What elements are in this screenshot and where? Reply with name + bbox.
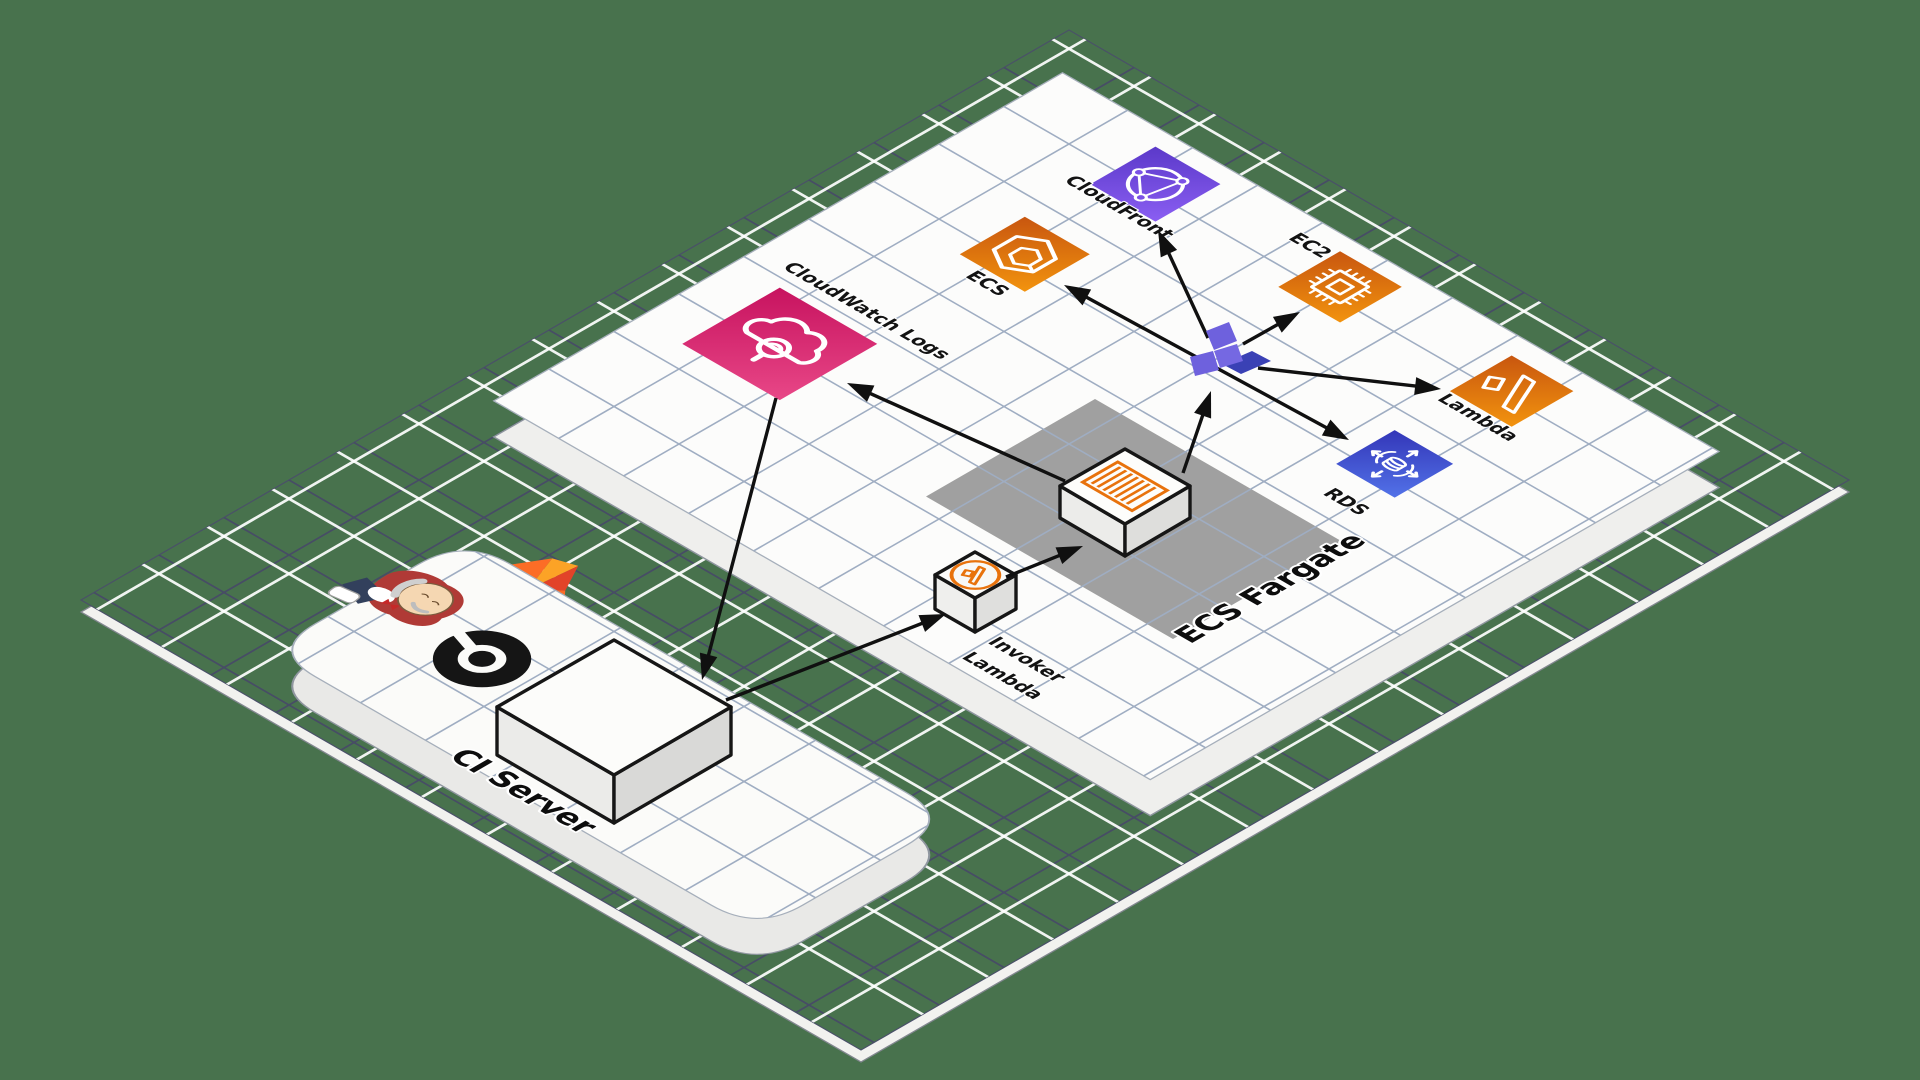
architecture-diagram: CI Server: [0, 0, 1920, 1080]
